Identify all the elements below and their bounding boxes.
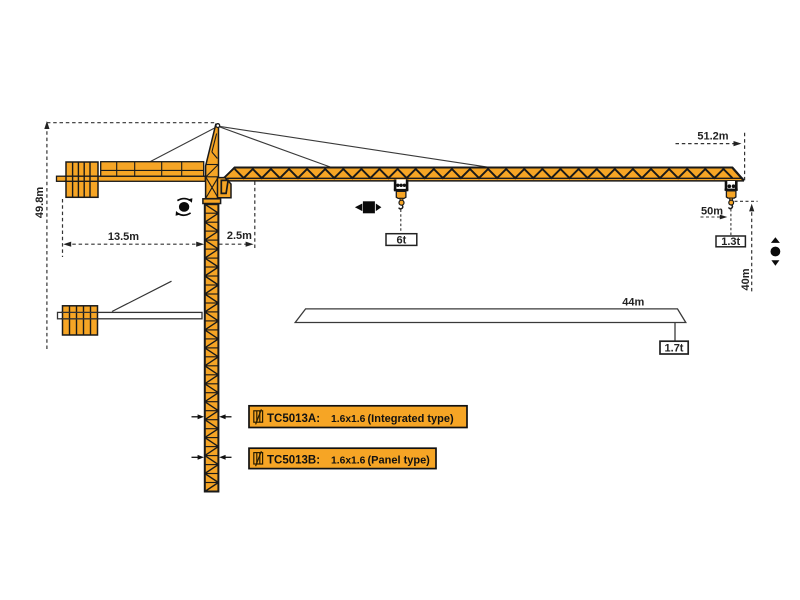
svg-text:44m: 44m bbox=[622, 297, 644, 309]
svg-text:1.3t: 1.3t bbox=[721, 236, 740, 248]
svg-text:TC5013B:: TC5013B: bbox=[267, 454, 320, 466]
svg-text:6t: 6t bbox=[397, 234, 407, 246]
svg-text:1.6x1.6: 1.6x1.6 bbox=[331, 414, 366, 425]
svg-text:(Panel type): (Panel type) bbox=[368, 454, 431, 466]
svg-text:TC5013A:: TC5013A: bbox=[267, 413, 320, 425]
svg-text:13.5m: 13.5m bbox=[108, 231, 139, 243]
svg-text:2.5m: 2.5m bbox=[227, 230, 252, 242]
svg-text:1.6x1.6: 1.6x1.6 bbox=[331, 455, 366, 466]
svg-text:49.8m: 49.8m bbox=[34, 187, 46, 218]
svg-text:(Integrated type): (Integrated type) bbox=[368, 413, 455, 425]
svg-text:40m: 40m bbox=[740, 268, 752, 290]
svg-text:1.7t: 1.7t bbox=[665, 343, 684, 355]
svg-text:51.2m: 51.2m bbox=[697, 131, 728, 143]
